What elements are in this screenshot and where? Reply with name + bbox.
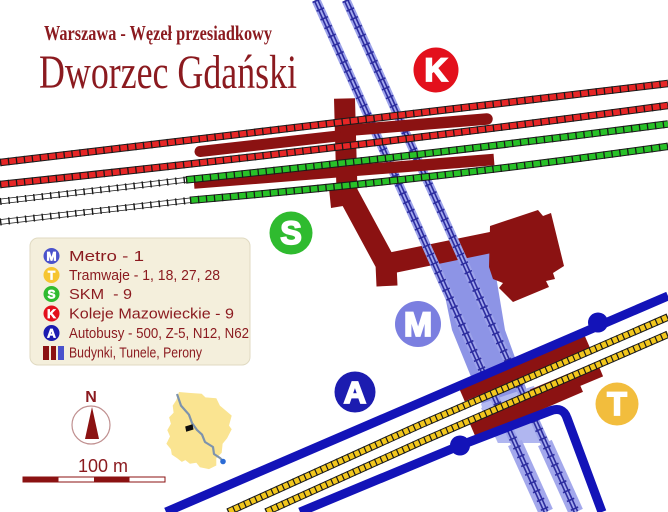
svg-text:T: T [607, 386, 627, 422]
svg-text:Autobusy - 500, Z-5, N12, N62: Autobusy - 500, Z-5, N12, N62 [69, 325, 249, 342]
svg-text:Metro - 1: Metro - 1 [69, 248, 144, 265]
svg-text:A: A [344, 375, 366, 410]
svg-text:SKM - 9: SKM - 9 [69, 286, 132, 303]
svg-text:S: S [280, 215, 301, 251]
svg-text:T: T [48, 269, 56, 283]
svg-text:Warszawa - Węzeł przesiadkowy: Warszawa - Węzeł przesiadkowy [44, 21, 272, 45]
svg-text:Koleje Mazowieckie - 9: Koleje Mazowieckie - 9 [69, 306, 234, 323]
svg-text:A: A [47, 327, 56, 341]
svg-text:Budynki, Tunele, Perony: Budynki, Tunele, Perony [69, 345, 202, 362]
svg-text:K: K [424, 52, 447, 88]
svg-text:Dworzec Gdański: Dworzec Gdański [39, 46, 297, 99]
svg-text:K: K [47, 307, 56, 321]
svg-text:S: S [47, 288, 55, 302]
svg-text:100 m: 100 m [78, 456, 128, 476]
svg-text:N: N [85, 389, 97, 406]
svg-text:M: M [47, 250, 57, 264]
svg-text:Tramwaje - 1, 18, 27, 28: Tramwaje - 1, 18, 27, 28 [69, 267, 220, 284]
svg-text:M: M [404, 306, 432, 344]
